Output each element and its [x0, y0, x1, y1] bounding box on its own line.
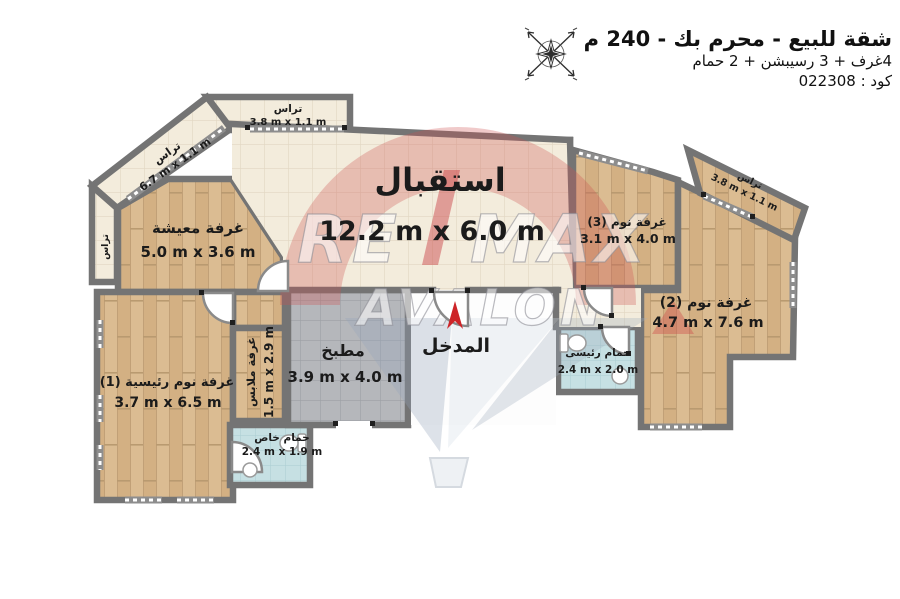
label-private-bath-dims: 2.4 m x 1.9 m — [242, 446, 323, 458]
label-dressing-name: غرفة ملابس — [244, 337, 258, 407]
label-master-bedroom-dims: 3.7 m x 6.5 m — [114, 395, 221, 411]
label-terrace-left-name: تراس — [100, 234, 111, 260]
label-bedroom2-dims: 4.7 m x 7.6 m — [652, 315, 763, 331]
listing-subtitle: 4غرف + 3 رسيبشن + 2 حمام — [472, 52, 892, 72]
label-bedroom2-name: غرفة نوم (2) — [660, 295, 753, 311]
label-bedroom3-dims: 3.1 m x 4.0 m — [580, 231, 676, 246]
label-master-bath-name: حمام رئيسى — [565, 347, 630, 359]
title-block: شقة للبيع - محرم بك - 240 م 4غرف + 3 رسي… — [472, 26, 892, 91]
label-entrance-name: المدخل — [422, 335, 490, 357]
label-kitchen-name: مطبخ — [321, 341, 365, 360]
label-master-bedroom-name: غرفة نوم رئيسية (1) — [100, 375, 235, 390]
label-reception-name: استقبال — [374, 161, 505, 199]
room-terrace-left — [92, 186, 117, 282]
listing-code: كود : 022308 — [472, 72, 892, 92]
listing-title: شقة للبيع - محرم بك - 240 م — [472, 26, 892, 52]
label-bedroom3-name: غرفة نوم (3) — [587, 215, 666, 230]
label-dressing-dims: 1.5 m x 2.9 m — [262, 326, 276, 418]
label-terrace-top-name: تراس — [274, 103, 303, 115]
room-hall — [233, 292, 285, 328]
room-dressing — [233, 328, 285, 421]
label-reception-dims: 12.2 m x 6.0 m — [319, 216, 545, 247]
label-kitchen-dims: 3.9 m x 4.0 m — [288, 368, 403, 386]
sink-private-bath — [243, 463, 257, 477]
balloon-basket — [430, 458, 468, 487]
label-living-name: غرفة معيشة — [152, 219, 244, 237]
watermark-avalon: AVALON — [354, 279, 606, 337]
label-master-bath-dims: 2.4 m x 2.0 m — [558, 364, 639, 376]
label-terrace-top-dims: 3.8 m x 1.1 m — [250, 117, 327, 128]
label-living-dims: 5.0 m x 3.6 m — [141, 243, 256, 261]
floorplan-page: RE MAX AVALON استقبال 12.2 m x 6.0 m — [0, 0, 900, 599]
label-private-bath-name: حمام خاص — [254, 432, 310, 444]
